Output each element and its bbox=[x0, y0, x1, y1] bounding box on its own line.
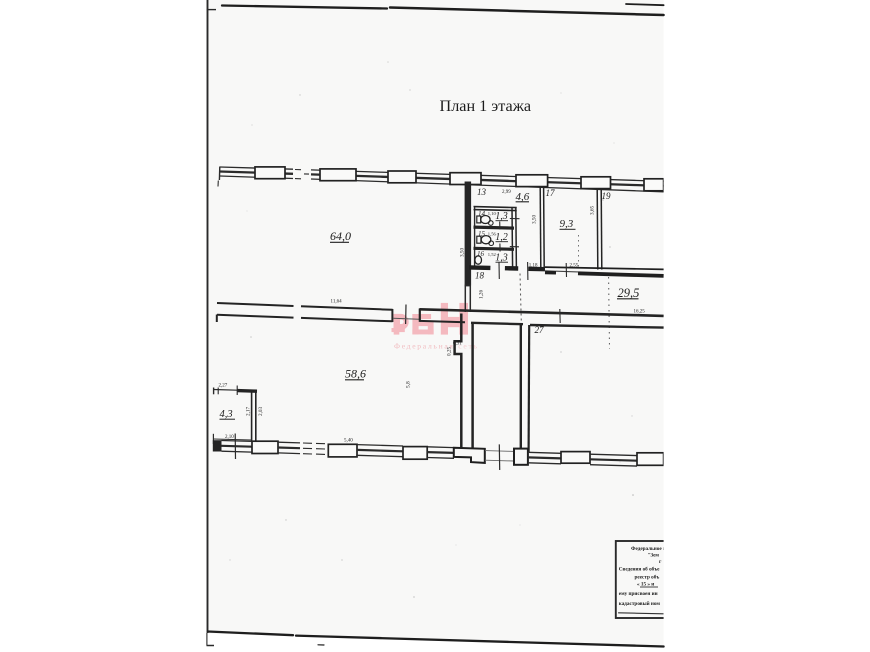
svg-text:0,25: 0,25 bbox=[447, 347, 453, 356]
svg-text:План 1 этажа: План 1 этажа bbox=[440, 97, 532, 115]
svg-text:кадастровый ном: кадастровый ном bbox=[619, 600, 661, 607]
svg-text:Федеральное го: Федеральное го bbox=[631, 546, 668, 552]
svg-text:17: 17 bbox=[546, 188, 556, 198]
svg-text:11,64: 11,64 bbox=[331, 300, 343, 305]
svg-text:5,40: 5,40 bbox=[344, 439, 353, 444]
svg-text:"Зем: "Зем bbox=[648, 553, 660, 559]
svg-text:0,31: 0,31 bbox=[453, 342, 462, 347]
svg-text:ему присвоен ин: ему присвоен ин bbox=[619, 591, 658, 597]
svg-text:64,0: 64,0 bbox=[330, 229, 351, 243]
svg-text:Сведения об объе: Сведения об объе bbox=[619, 566, 660, 573]
svg-text:13: 13 bbox=[477, 187, 487, 197]
svg-text:2,99: 2,99 bbox=[502, 190, 511, 195]
svg-text:9,3: 9,3 bbox=[560, 218, 574, 230]
svg-text:2,55: 2,55 bbox=[570, 264, 579, 269]
svg-text:19: 19 bbox=[602, 191, 612, 201]
svg-text:16,25: 16,25 bbox=[634, 310, 646, 315]
svg-text:2,03: 2,03 bbox=[258, 407, 264, 416]
svg-text:2,17: 2,17 bbox=[245, 407, 251, 416]
svg-text:1,26: 1,26 bbox=[479, 290, 485, 299]
svg-text:3,65: 3,65 bbox=[590, 206, 596, 215]
svg-text:3,50: 3,50 bbox=[532, 215, 538, 224]
svg-text:2,27: 2,27 bbox=[219, 384, 228, 389]
svg-text:27: 27 bbox=[535, 325, 545, 335]
svg-text:1,18: 1,18 bbox=[529, 264, 538, 269]
svg-text:4,3: 4,3 bbox=[220, 409, 233, 420]
svg-text:4,6: 4,6 bbox=[516, 191, 530, 203]
svg-text:Федеральная сеть: Федеральная сеть bbox=[394, 342, 479, 351]
svg-text:29,5: 29,5 bbox=[618, 286, 640, 300]
svg-text:реестр объ: реестр объ bbox=[635, 574, 660, 581]
svg-text:58,6: 58,6 bbox=[345, 367, 366, 381]
svg-text:18: 18 bbox=[475, 271, 485, 281]
svg-text:5,8: 5,8 bbox=[406, 381, 412, 388]
